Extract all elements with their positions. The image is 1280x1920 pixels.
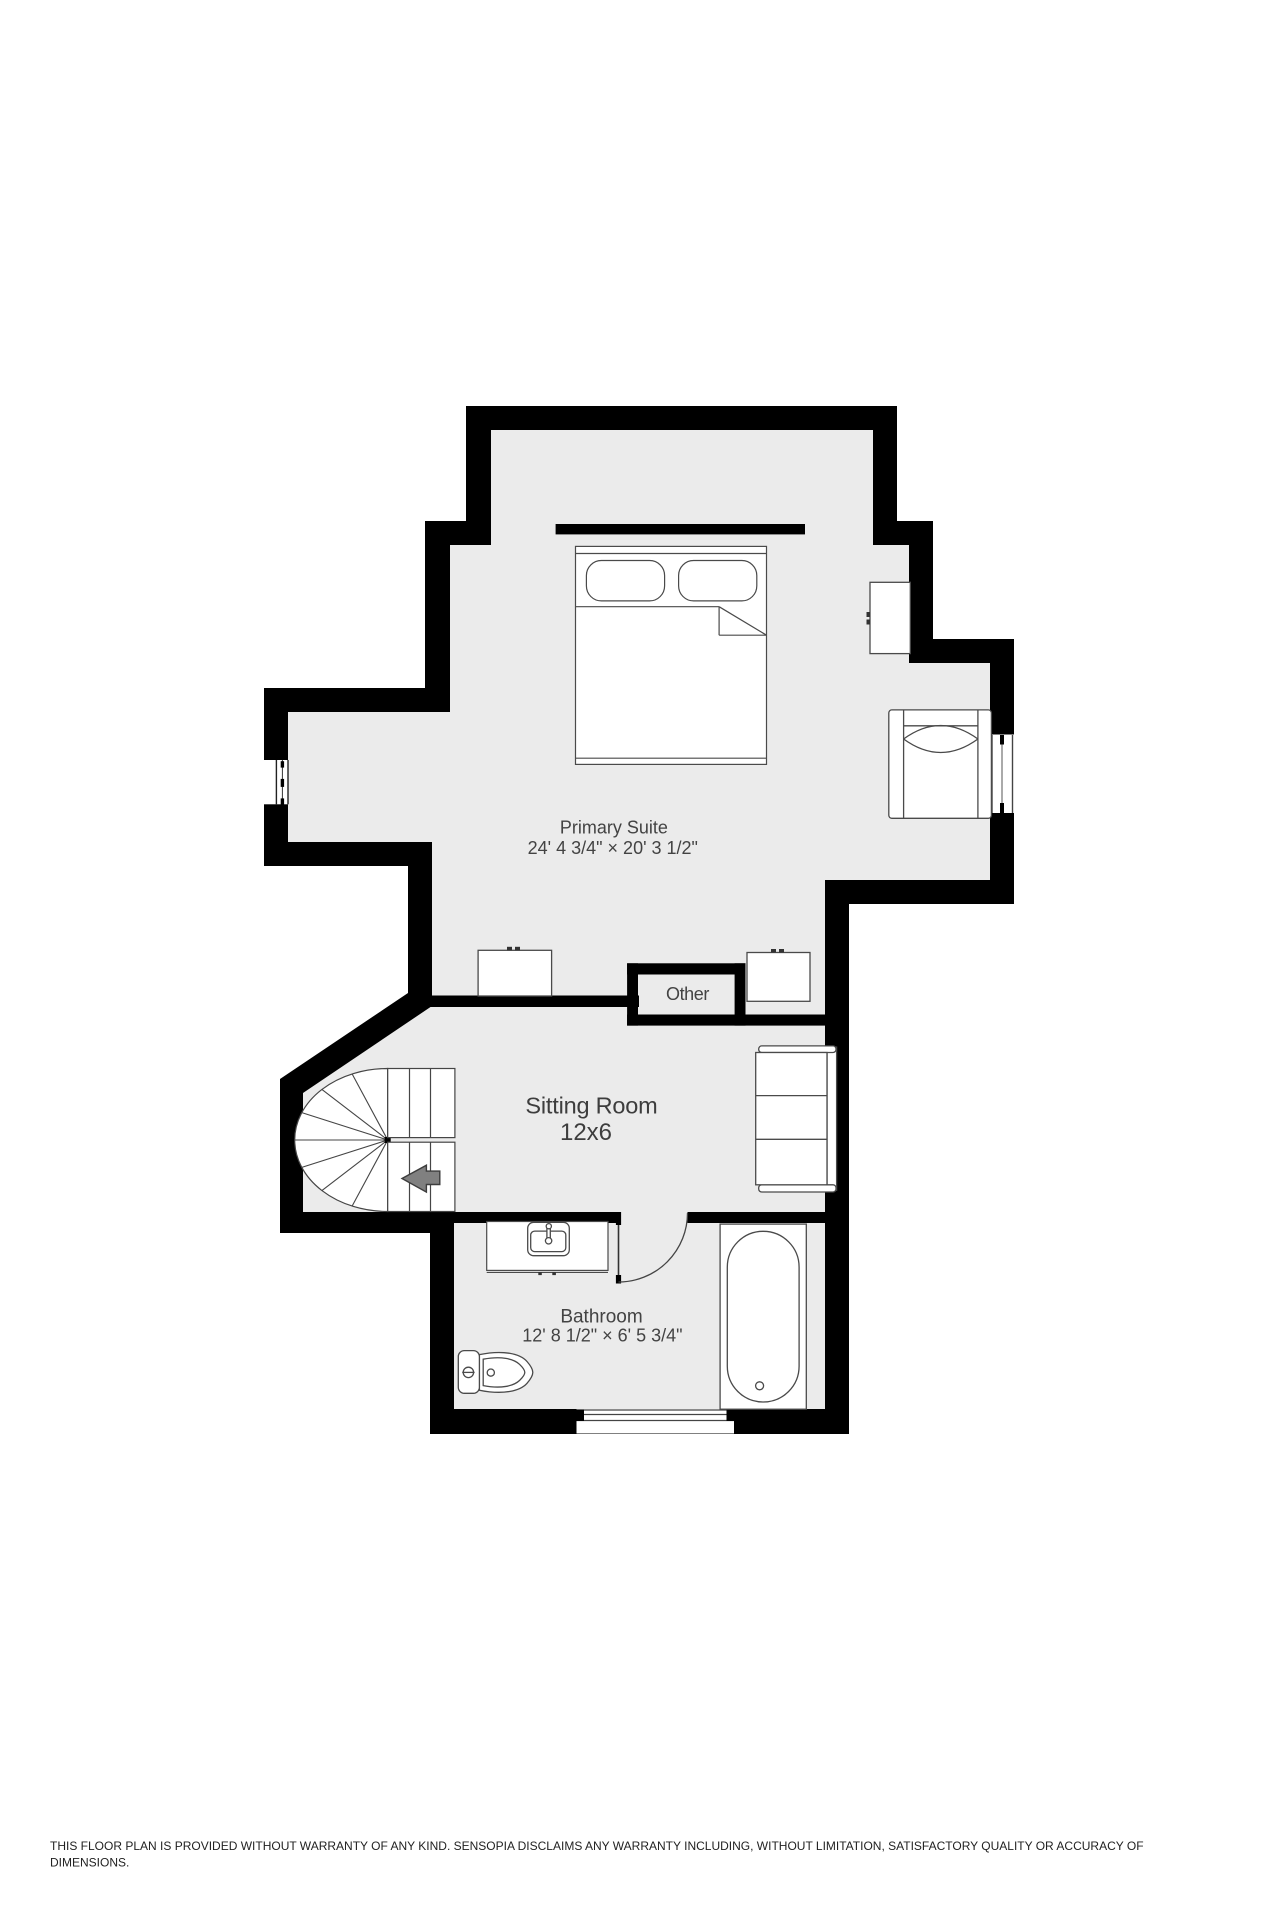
svg-text:THIS FLOOR PLAN IS PROVIDED WI: THIS FLOOR PLAN IS PROVIDED WITHOUT WARR… (50, 1839, 1144, 1853)
svg-text:Bathroom: Bathroom (560, 1307, 642, 1328)
svg-text:Sitting Room: Sitting Room (525, 1093, 657, 1119)
svg-text:12' 8 1/2" × 6' 5 3/4": 12' 8 1/2" × 6' 5 3/4" (522, 1326, 682, 1346)
svg-text:12x6: 12x6 (560, 1119, 612, 1146)
svg-text:DIMENSIONS.: DIMENSIONS. (50, 1856, 129, 1870)
svg-text:Primary Suite: Primary Suite (560, 818, 668, 838)
svg-text:24' 4 3/4" × 20' 3 1/2": 24' 4 3/4" × 20' 3 1/2" (528, 838, 698, 858)
svg-text:Other: Other (666, 984, 709, 1004)
